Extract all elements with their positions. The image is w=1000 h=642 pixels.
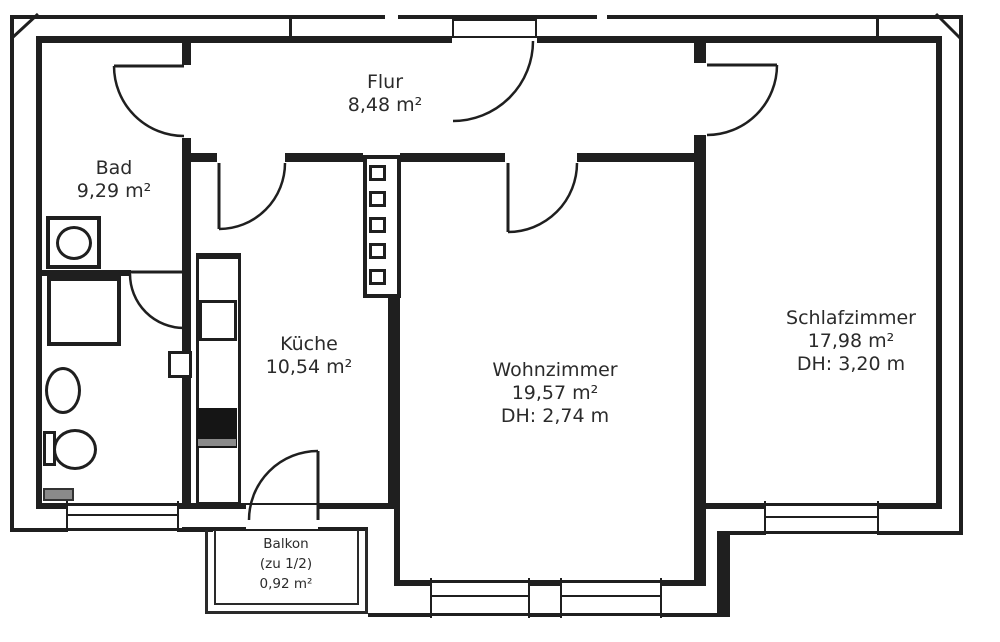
room-label-wohnzimmer: Wohnzimmer 19,57 m² DH: 2,74 m	[455, 359, 655, 428]
chamfer-top-right	[936, 14, 961, 39]
schlafzimmer-door-arc	[707, 65, 777, 135]
room-area: 8,48 m²	[295, 94, 475, 117]
room-area: 19,57 m²	[455, 382, 655, 405]
room-area: 9,29 m²	[44, 180, 184, 203]
room-label-kueche: Küche 10,54 m²	[229, 333, 389, 379]
room-label-balkon: Balkon (zu 1/2) 0,92 m²	[216, 534, 356, 594]
room-ceiling-height: DH: 2,74 m	[455, 405, 655, 428]
room-name: Balkon	[216, 534, 356, 554]
room-name: Küche	[229, 333, 389, 356]
room-area: 17,98 m²	[751, 330, 951, 353]
room-area: 0,92 m²	[216, 574, 356, 594]
bad-inner-door-arc	[130, 274, 184, 328]
room-label-bad: Bad 9,29 m²	[44, 157, 184, 203]
balkon-door-arc	[249, 451, 318, 520]
wohnzimmer-door-arc	[508, 163, 577, 232]
room-ceiling-height: DH: 3,20 m	[751, 353, 951, 376]
room-label-schlafzimmer: Schlafzimmer 17,98 m² DH: 3,20 m	[751, 307, 951, 376]
room-name: Flur	[295, 71, 475, 94]
bad-door-arc	[114, 66, 184, 136]
room-label-flur: Flur 8,48 m²	[295, 71, 475, 117]
chamfer-top-left	[12, 14, 38, 38]
room-name: Wohnzimmer	[455, 359, 655, 382]
room-name: Schlafzimmer	[751, 307, 951, 330]
kueche-door-arc	[219, 163, 285, 229]
floorplan: Flur 8,48 m² Bad 9,29 m² Küche 10,54 m² …	[0, 0, 1000, 642]
room-name: Bad	[44, 157, 184, 180]
room-share: (zu 1/2)	[216, 554, 356, 574]
room-area: 10,54 m²	[229, 356, 389, 379]
